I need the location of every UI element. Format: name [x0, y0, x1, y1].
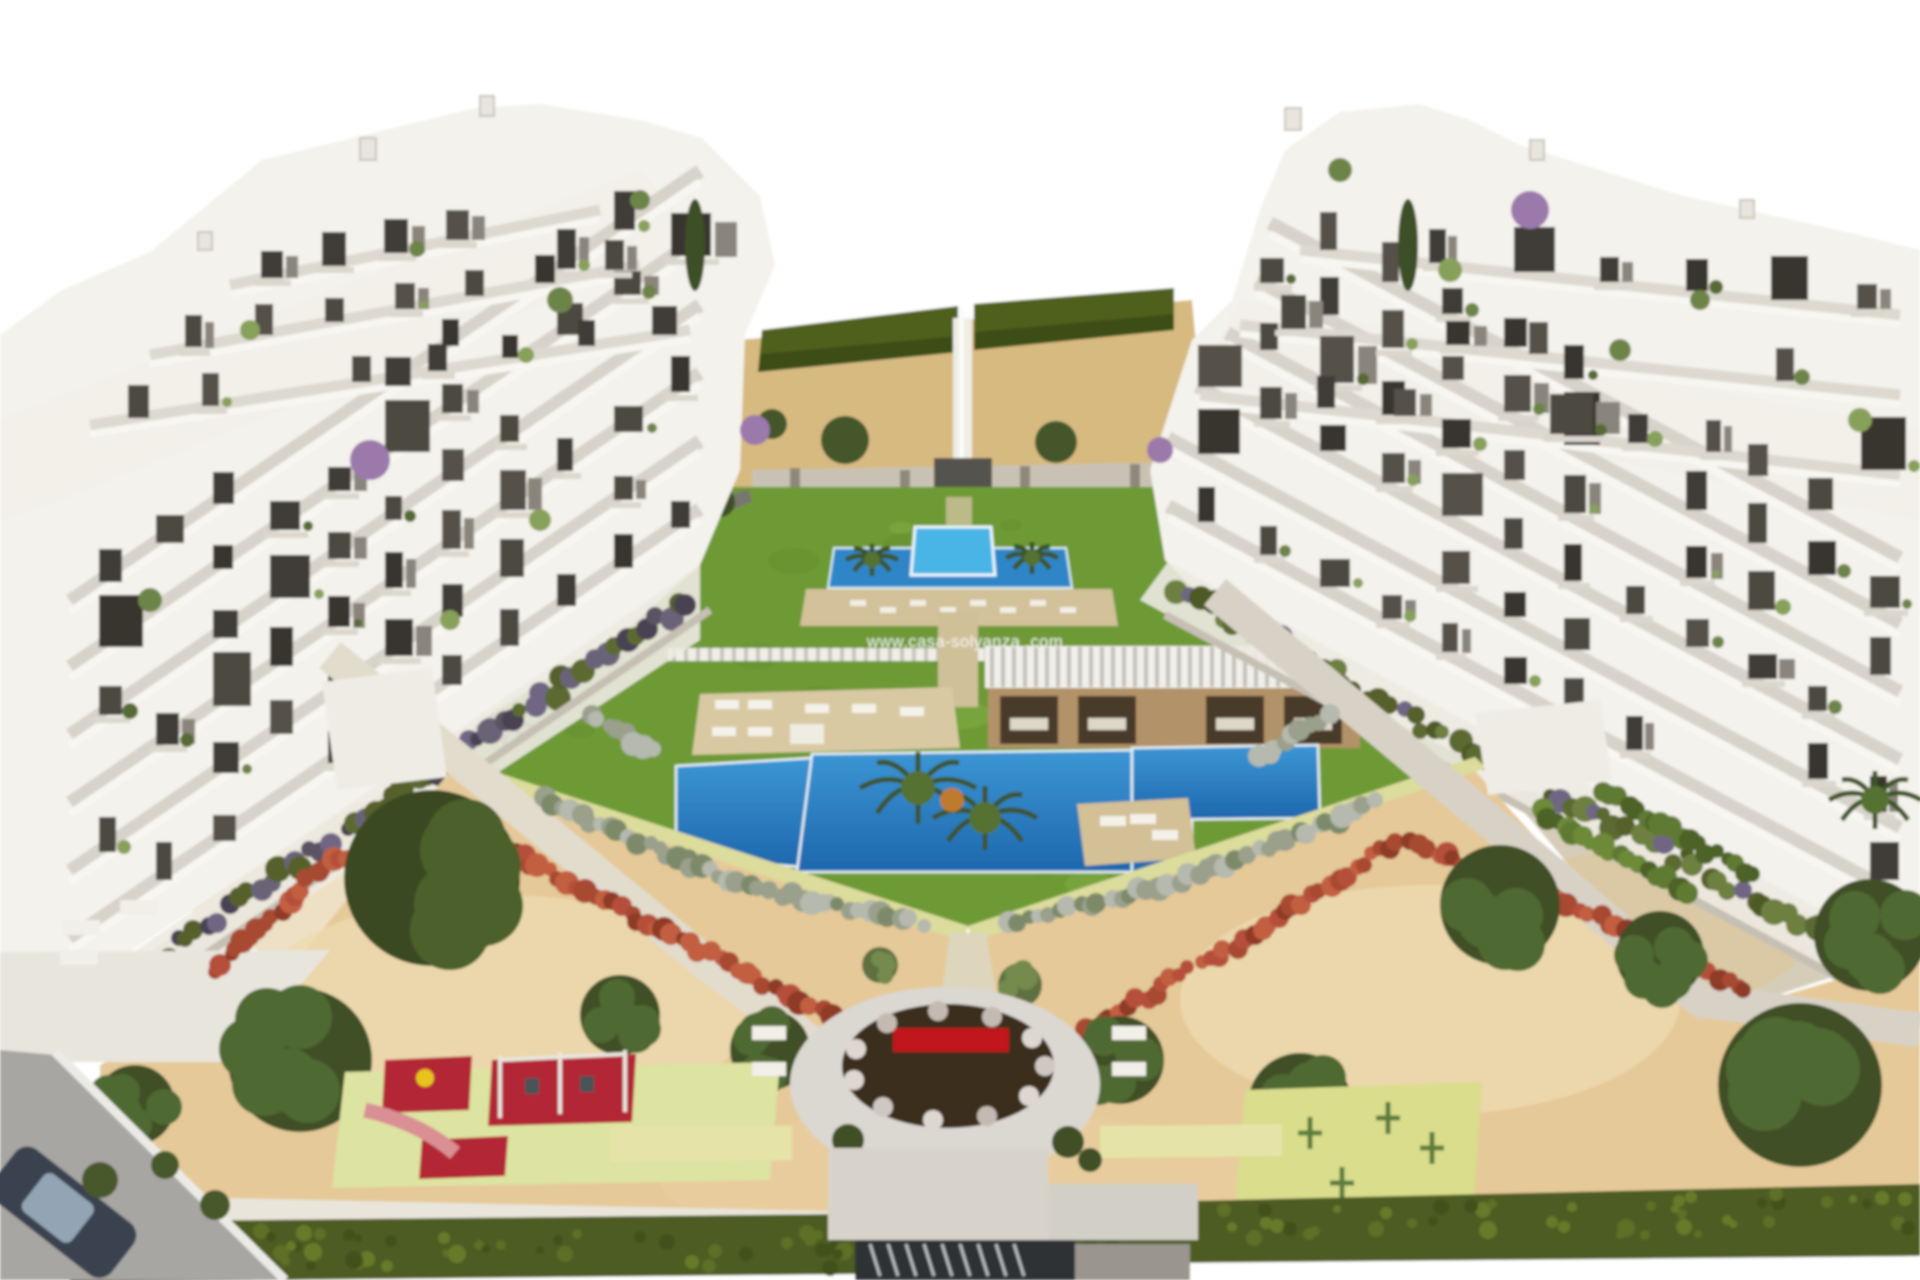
svg-text:www.casa-solyanza .com: www.casa-solyanza .com: [866, 633, 1063, 651]
